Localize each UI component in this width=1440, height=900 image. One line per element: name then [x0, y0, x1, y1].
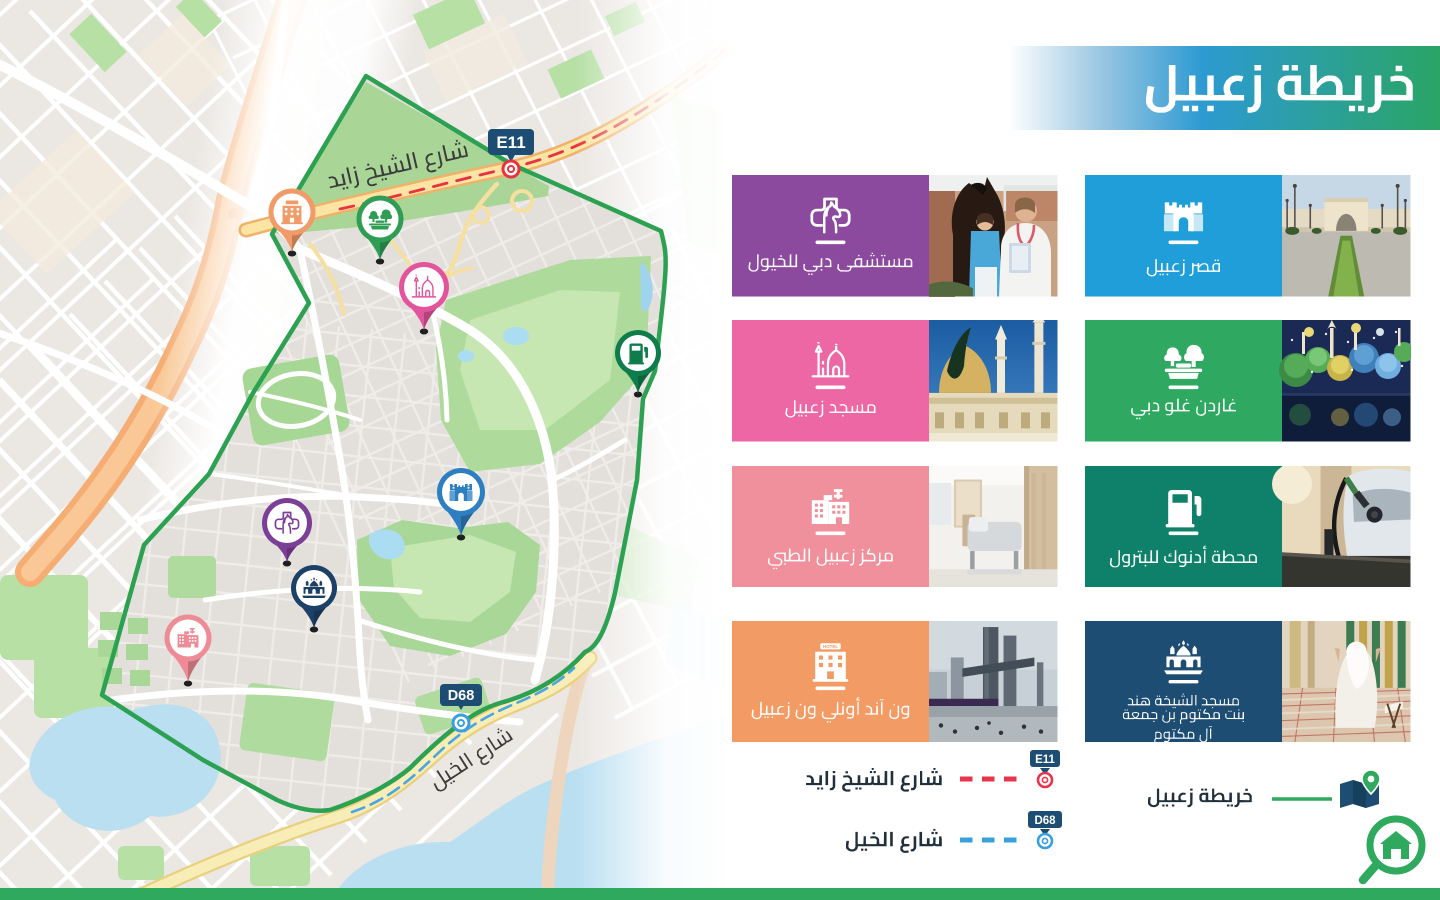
svg-text:D68: D68 — [448, 688, 475, 704]
svg-text:D68: D68 — [1034, 815, 1056, 827]
svg-text:E11: E11 — [1035, 754, 1055, 766]
svg-text:HOTEL: HOTEL — [823, 644, 838, 649]
svg-text:HOTEL: HOTEL — [287, 200, 297, 204]
svg-text:E11: E11 — [496, 133, 525, 152]
